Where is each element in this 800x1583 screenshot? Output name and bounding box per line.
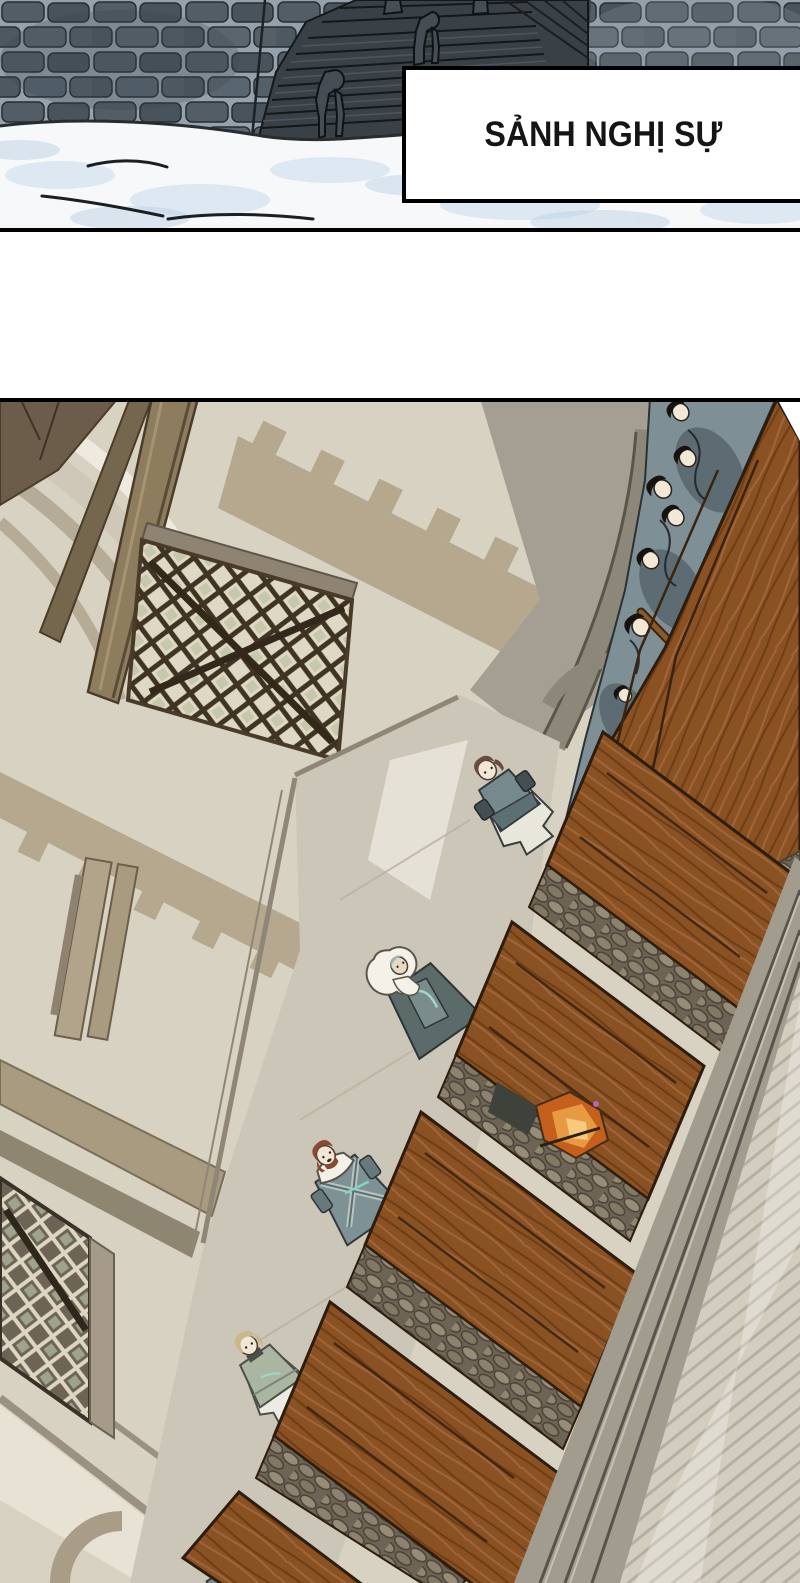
spark	[593, 1101, 599, 1107]
council-hall-art	[0, 398, 800, 1583]
panel-courtyard: SẢNH NGHỊ SỰ	[0, 0, 800, 232]
panel-council-hall	[0, 398, 800, 1583]
caption-box: SẢNH NGHỊ SỰ	[402, 66, 800, 203]
caption-text: SẢNH NGHỊ SỰ	[484, 115, 722, 155]
panel2-border	[0, 398, 800, 402]
panel-gap	[0, 232, 800, 398]
comic-page: SẢNH NGHỊ SỰ	[0, 0, 800, 1583]
